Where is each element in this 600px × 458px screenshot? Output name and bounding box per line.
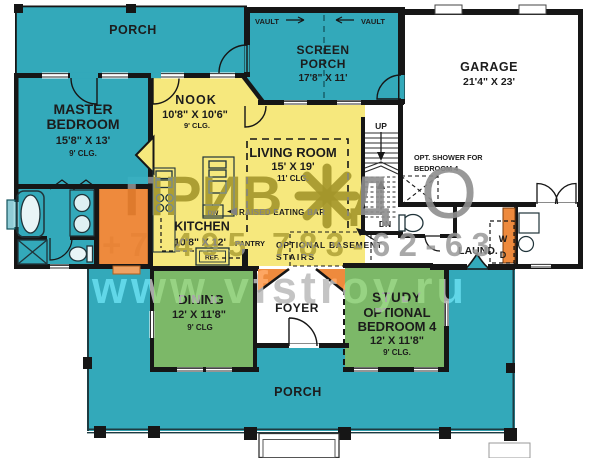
svg-text:9' CLG.: 9' CLG.: [69, 149, 97, 158]
svg-text:D: D: [500, 250, 507, 260]
svg-text:21'4" X 23': 21'4" X 23': [463, 76, 515, 88]
svg-text:BEDROOM: BEDROOM: [46, 116, 119, 132]
svg-text:SCREEN: SCREEN: [296, 43, 349, 57]
svg-text:BEDROOM 4: BEDROOM 4: [358, 319, 438, 334]
svg-text:www.vfstroy.ru: www.vfstroy.ru: [91, 262, 464, 313]
svg-text:15'8" X 13': 15'8" X 13': [56, 135, 111, 147]
svg-text:PORCH: PORCH: [274, 385, 322, 399]
svg-text:Д: Д: [350, 164, 390, 227]
svg-text:VAULT: VAULT: [255, 17, 279, 26]
svg-text:12' X 11'8": 12' X 11'8": [370, 335, 424, 347]
svg-text:MASTER: MASTER: [53, 101, 112, 117]
svg-text:LIVING ROOM: LIVING ROOM: [249, 145, 336, 160]
svg-text:О: О: [421, 154, 477, 234]
svg-text:9' CLG: 9' CLG: [187, 323, 212, 332]
svg-text:W: W: [499, 234, 508, 244]
svg-text:PORCH: PORCH: [109, 23, 157, 37]
svg-text:17'8" X 11': 17'8" X 11': [299, 73, 348, 84]
svg-text:10'8" X 10'6": 10'8" X 10'6": [162, 109, 228, 121]
svg-text:9' CLG.: 9' CLG.: [184, 121, 210, 130]
svg-text:VAULT: VAULT: [361, 17, 385, 26]
svg-text:GARAGE: GARAGE: [460, 60, 518, 74]
svg-text:NOOK: NOOK: [175, 93, 217, 107]
svg-text:ПРИВ: ПРИВ: [124, 164, 282, 227]
svg-text:9' CLG.: 9' CLG.: [383, 348, 411, 357]
svg-text:UP: UP: [375, 121, 387, 131]
svg-text:PORCH: PORCH: [300, 57, 346, 71]
